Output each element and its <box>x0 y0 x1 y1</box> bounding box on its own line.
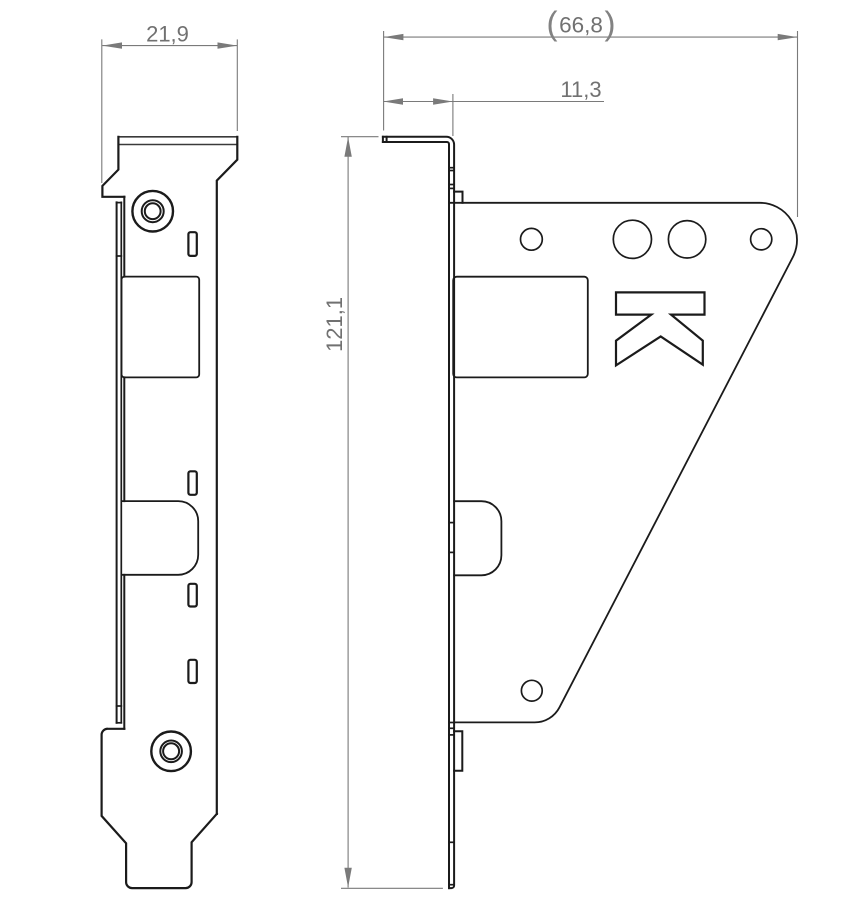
svg-text:(: ( <box>547 5 558 42</box>
svg-text:66,8: 66,8 <box>559 13 603 38</box>
svg-text:11,3: 11,3 <box>560 77 601 102</box>
svg-text:21,9: 21,9 <box>146 22 189 47</box>
svg-text:): ) <box>605 5 616 42</box>
svg-text:121,1: 121,1 <box>322 297 347 352</box>
